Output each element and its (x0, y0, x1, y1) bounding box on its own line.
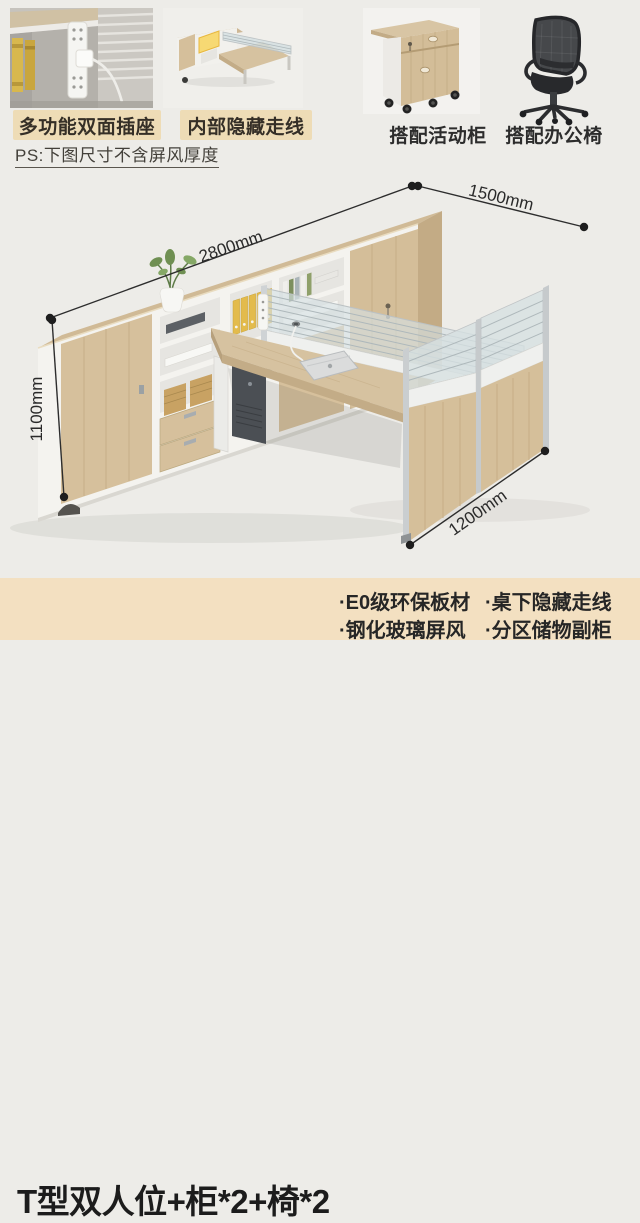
main-product-image (0, 165, 640, 578)
spec-bullet-storage: ·分区储物副柜 (485, 614, 612, 643)
mobile-cabinet-photo (363, 8, 480, 114)
spec-bullet-board: ·E0级环保板材 (339, 586, 470, 615)
dimension-cabinet-height: 1100mm (27, 377, 47, 442)
feature-label-wiring: 内部隐藏走线 (180, 110, 312, 140)
office-chair-photo (510, 14, 602, 126)
hidden-wiring-photo (163, 8, 303, 108)
feature-label-chair: 搭配办公椅 (502, 121, 606, 148)
feature-label-socket: 多功能双面插座 (13, 110, 161, 140)
pc-tower (232, 366, 266, 444)
feature-label-cabinet: 搭配活动柜 (384, 121, 492, 148)
product-infographic: { "features": [ { "label": "多功能双面插座" }, … (0, 0, 640, 640)
spec-banner: T型双人位+柜*2+椅*2 ·E0级环保板材 ·桌下隐藏走线 ·钢化玻璃屏风 ·… (0, 578, 640, 640)
spec-bullet-wiring: ·桌下隐藏走线 (485, 586, 612, 615)
spec-bullet-glass: ·钢化玻璃屏风 (339, 614, 466, 643)
size-disclaimer-note: PS:下图尺寸不含屏风厚度 (15, 141, 219, 168)
product-title: T型双人位+柜*2+椅*2 (17, 1175, 330, 1223)
socket-photo (10, 8, 153, 108)
